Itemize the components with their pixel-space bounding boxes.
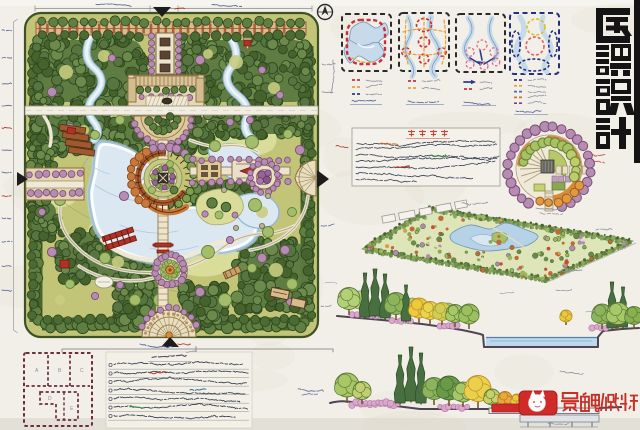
svg-text:C: C	[80, 368, 84, 374]
svg-text:D: D	[48, 396, 52, 402]
